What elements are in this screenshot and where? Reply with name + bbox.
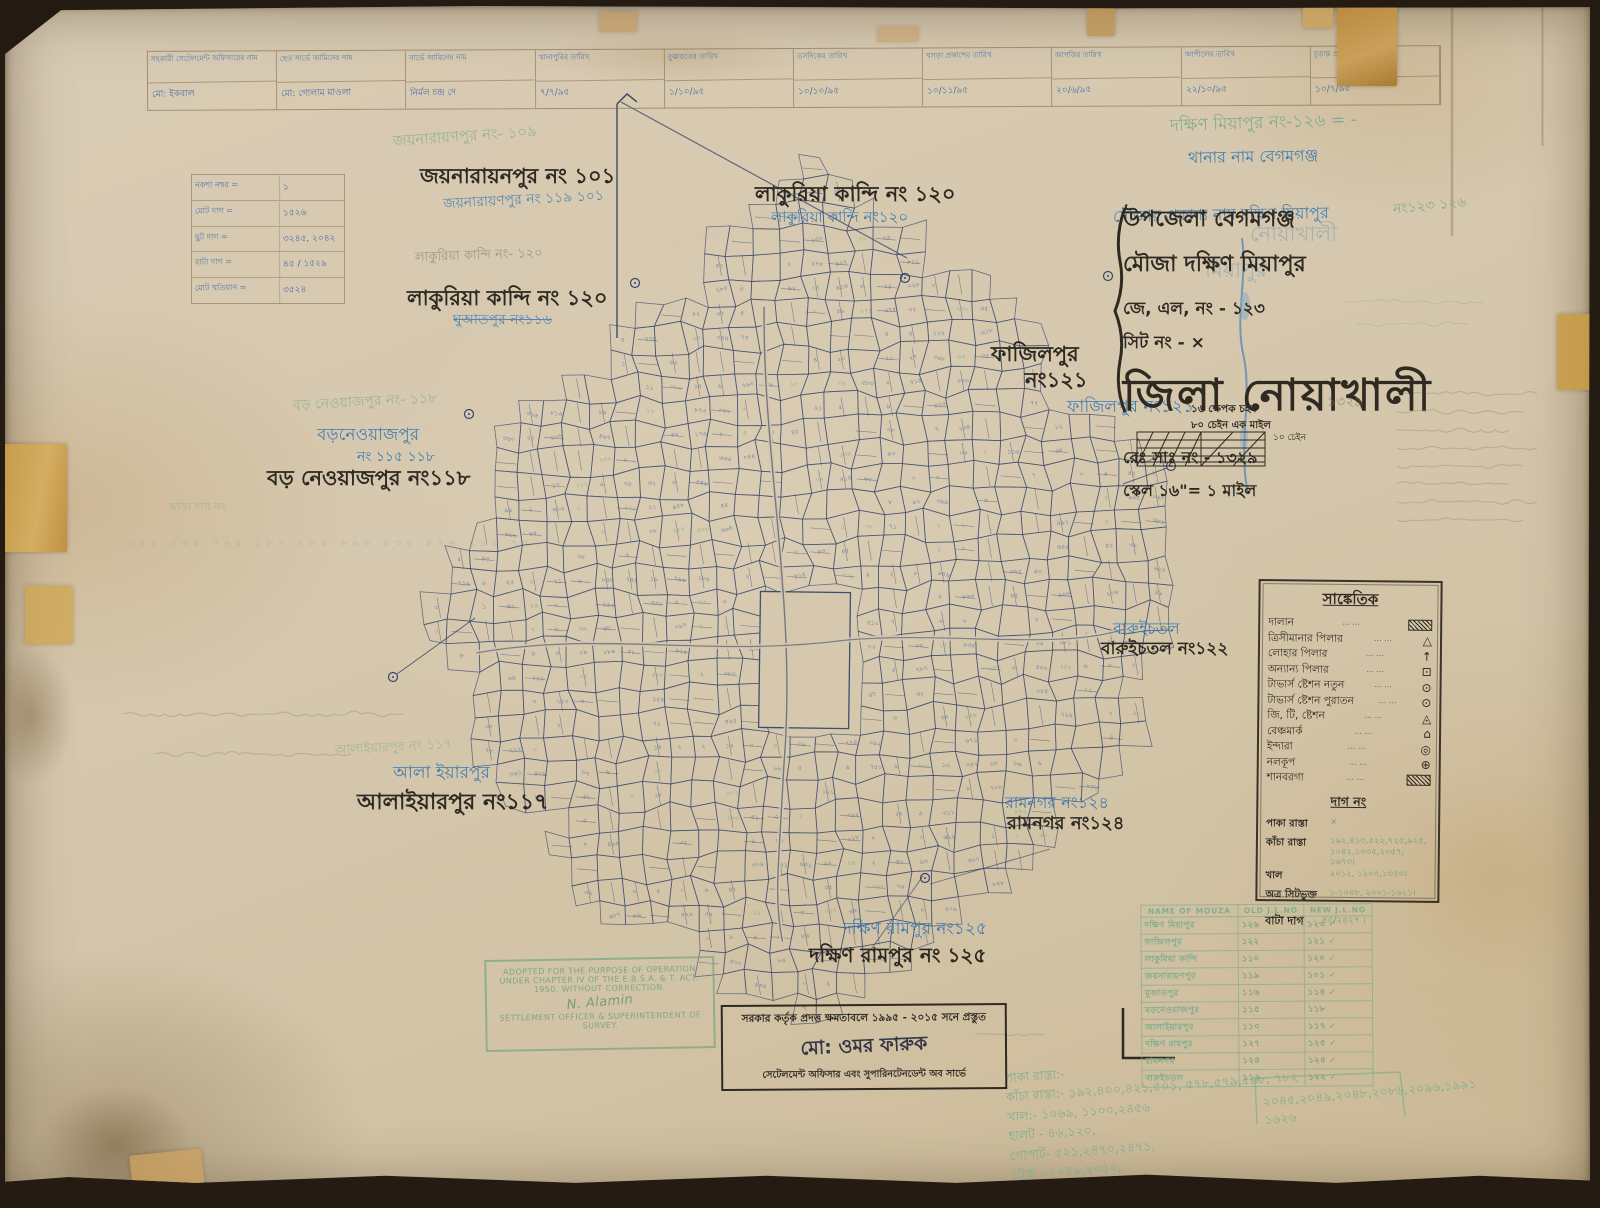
iron-pillar-symbol: ↑ (1422, 650, 1432, 664)
scanned-cadastral-map-sheet: ০৩৫৯১৭৮৫৮২৫৮৫০৭৪৫০২৫৭৮৯০৭৮১১২৮৫৫৬৭৬৪৯১৬৩… (0, 0, 1600, 1208)
register-table: সহকারী সেটেলমেন্ট অফিসারের নামমো: ইকবাল … (147, 45, 1441, 111)
svg-text:০৪৭: ০৪৭ (966, 762, 978, 769)
svg-text:৪০৮: ৪০৮ (652, 672, 664, 679)
svg-text:৫: ৫ (621, 337, 625, 344)
dag-value: ১-১০৪৮, ২০০১-১৬২১। (1329, 889, 1429, 906)
svg-text:৯১৬: ৯১৬ (835, 282, 848, 291)
legend-dots: ··· ··· (1354, 698, 1422, 708)
svg-text:৩: ৩ (811, 308, 816, 316)
svg-text:০৮১: ০৮১ (1059, 639, 1071, 646)
paper: ০৩৫৯১৭৮৫৮২৫৮৫০৭৪৫০২৫৭৮৯০৭৮১১২৮৫৫৬৭৬৪৯১৬৩… (5, 6, 1590, 1190)
register-column: খসড়া প্রকাশের তারিখ১০/১১/৯৫ (923, 48, 1052, 107)
svg-text:৫৪৬: ৫৪৬ (695, 479, 708, 488)
svg-text:৫১৯: ৫১৯ (909, 377, 922, 386)
old-jl: ১১৬ (1238, 984, 1304, 1001)
svg-text:৩: ৩ (672, 480, 676, 487)
svg-text:২২: ২২ (652, 720, 661, 729)
svg-text:৩৫৭: ৩৫৭ (825, 908, 837, 916)
svg-text:৩৩: ৩৩ (989, 760, 999, 769)
svg-text:২: ২ (960, 522, 965, 530)
register-column: সার্ভে আমিনের নামনির্মল চন্দ্র দে (406, 50, 535, 109)
benchmark-symbol: ⌂ (1423, 727, 1431, 741)
tape-mark (1557, 314, 1600, 390)
svg-text:৪৬২: ৪৬২ (1035, 664, 1048, 672)
svg-text:৬৪৫: ৬৪৫ (1057, 543, 1070, 551)
svg-text:৬২: ৬২ (916, 690, 925, 698)
svg-text:০৯: ০৯ (797, 741, 805, 748)
svg-text:০৯২: ০৯২ (847, 811, 860, 819)
svg-text:৮: ৮ (802, 981, 807, 989)
svg-text:৫: ৫ (919, 834, 924, 841)
svg-text:৬৯: ৬৯ (848, 907, 857, 916)
svg-text:৩: ৩ (600, 529, 605, 536)
register-column: খানাপুরির তারিখ৭/৭/৯৫ (535, 50, 664, 109)
note-chharadag-numbers-green: ৩৪৫ ৩৬৪ ৭৬৫ ১৮৭ ২৮৫ ৬৬৬ ৪৩৫ ৪২৬ ৭৪৪ ৭৫২ (127, 538, 545, 550)
svg-text:৯: ৯ (886, 403, 890, 410)
svg-text:৯০৭: ৯০৭ (835, 259, 848, 268)
svg-text:৫০৯: ৫০৯ (945, 906, 957, 913)
register-header: আপীলের তারিখ (1181, 46, 1310, 79)
svg-text:৮: ৮ (966, 786, 970, 793)
register-value: নির্মল চন্দ্র দে (406, 80, 535, 110)
svg-text:৭: ৭ (530, 627, 536, 635)
summary-value: ৪৫ / ১৫২৯ (278, 252, 344, 278)
legend-dots: ··· ··· (1343, 636, 1423, 646)
svg-text:৭৭৪: ৭৭৪ (845, 739, 858, 748)
svg-text:৯২: ৯২ (1132, 710, 1140, 718)
svg-text:০: ০ (1107, 662, 1112, 669)
svg-text:৭: ৭ (871, 835, 876, 842)
svg-text:১৭: ১৭ (551, 482, 560, 490)
svg-text:৬: ৬ (459, 652, 465, 660)
svg-text:৫৭৮: ৫৭৮ (811, 261, 823, 269)
svg-text:৩৭৯: ৩৭৯ (751, 861, 764, 870)
svg-text:৭৯৬: ৭৯৬ (673, 575, 686, 584)
svg-text:৮৫: ৮৫ (848, 860, 856, 867)
svg-text:৬: ৬ (704, 887, 709, 894)
svg-text:০: ০ (1079, 471, 1084, 479)
svg-text:২: ২ (528, 507, 532, 514)
new-jl: ১২০ ✓ (1304, 950, 1372, 967)
svg-text:৫: ৫ (838, 404, 843, 412)
svg-text:৬৭: ৬৭ (787, 285, 796, 293)
svg-text:৭: ৭ (745, 574, 750, 581)
svg-text:৯৩: ৯৩ (920, 858, 929, 866)
svg-text:১৬: ১৬ (725, 742, 734, 750)
svg-text:৯: ৯ (894, 763, 899, 770)
svg-text:৭৫: ৭৫ (740, 334, 749, 342)
svg-text:১: ১ (723, 623, 727, 630)
new-jl: ১২১ ✓ (1304, 933, 1372, 950)
svg-text:৮৬৩: ৮৬৩ (962, 593, 975, 601)
village-label-fazilpur: ফাজিলপুর (991, 342, 1079, 366)
svg-text:০: ০ (960, 545, 965, 553)
svg-text:৮৪: ৮৪ (778, 957, 786, 964)
table-row: মুজাতপুর১১৬১১৪ ✓ (1141, 984, 1372, 1003)
dag-value: ১৯২,৪১৩,৫২২,৭২৫,৯২৫, ১০৪২,১৩৩৫,২০৫৭, ১৬৭… (1330, 836, 1430, 868)
bata-dag-value: ৪৫/২৪২৭ । (1322, 913, 1366, 932)
svg-text:৮৫৮: ৮৫৮ (602, 577, 614, 584)
svg-text:৭: ৭ (1031, 472, 1036, 479)
village-label-alaiyarpur-blue: আলা ইয়ারপুর (393, 764, 490, 784)
svg-text:৮৯: ৮৯ (801, 932, 810, 941)
svg-text:৬: ৬ (1084, 663, 1088, 670)
svg-text:৩: ৩ (434, 604, 439, 612)
svg-text:৪০৬: ৪০৬ (534, 771, 546, 778)
register-header: খানাপুরির তারিখ (535, 49, 664, 82)
svg-text:৫১০: ৫১০ (866, 619, 879, 628)
svg-text:৩৮: ৩৮ (577, 553, 586, 561)
svg-text:০: ০ (630, 793, 635, 800)
village-label-lakuria-kandi-pencil: লাকুরিয়া কান্দি নং- ১২০ (415, 247, 543, 266)
svg-text:৯৩: ৯৩ (1033, 568, 1042, 576)
svg-text:৫০০: ৫০০ (729, 958, 742, 968)
svg-text:৩১৬: ৩১৬ (526, 410, 539, 419)
svg-text:৭৪৫: ৭৪৫ (625, 576, 638, 584)
village-label-lakuria-kandi-top-blue: লাকুরিয়া কান্দি নং১২০ (771, 209, 908, 226)
well-symbol: ◎ (1420, 742, 1431, 756)
legend-label: শানবরগা (1267, 770, 1304, 787)
dag-row: খাল২০১২, ১২০০,১৩৫৩। (1265, 869, 1429, 888)
paper-crease (1541, 6, 1544, 146)
svg-text:৭: ৭ (583, 842, 587, 849)
svg-text:৩২: ৩২ (716, 310, 725, 319)
register-header: খসড়া প্রকাশের তারিখ (923, 47, 1052, 80)
svg-text:৫: ৫ (777, 933, 782, 941)
svg-text:৬৩১: ৬৩১ (799, 861, 812, 870)
old-jl: ১২২ (1238, 933, 1304, 950)
svg-text:০০১: ০০১ (726, 788, 739, 798)
register-value: মো: গোলাম মাওলা (277, 81, 406, 111)
register-header: আপত্তির তারিখ (1052, 47, 1181, 80)
svg-text:৩৩: ৩৩ (957, 354, 965, 361)
svg-text:১৪: ১৪ (883, 283, 892, 291)
mouza-name: মুজাতপুর (1141, 985, 1238, 1003)
mouza-name: জয়নারায়ণপুর (1141, 968, 1238, 986)
village-label-dakkhin-rampur: দক্ষিণ রামপুর নং ১২৫ (809, 944, 986, 967)
adoption-stamp: ADOPTED FOR THE PURPOSE OF OPERATION UND… (484, 956, 716, 1052)
svg-text:৩১১: ৩১১ (942, 809, 955, 818)
village-label-jaynarayanpur: জয়নারায়নপুর নং ১০১ (420, 164, 615, 188)
tape-mark (1303, 2, 1333, 28)
svg-text:২: ২ (890, 571, 895, 578)
svg-text:৯: ৯ (845, 764, 850, 771)
svg-text:৮৬: ৮৬ (1013, 760, 1022, 768)
title-sheet-number: সিট নং - × (1123, 330, 1493, 358)
svg-text:২৬: ২৬ (1035, 640, 1043, 647)
svg-text:৬৫: ৬৫ (980, 305, 989, 313)
svg-text:৭৮১: ৭৮১ (1152, 517, 1165, 526)
svg-text:৭: ৭ (1131, 662, 1136, 670)
svg-text:৫: ৫ (656, 888, 661, 895)
svg-text:৮: ৮ (921, 907, 925, 914)
new-jl: ১২৪ ✓ (1305, 1052, 1373, 1069)
note-chharadag-green: ছাড়া দাগ নং (170, 501, 225, 514)
table-row: আলাইয়ারপুর১১০১১৭ ✓ (1142, 1018, 1373, 1037)
bata-dag-row: বাটা দাগ৪৫/২৪২৭ । (1265, 913, 1429, 934)
svg-text:৫১৪: ৫১৪ (793, 571, 806, 581)
svg-text:৭৮: ৭৮ (865, 524, 873, 531)
svg-text:২২: ২২ (753, 910, 762, 918)
traverse-station-new-symbol: ⊙ (1421, 681, 1431, 695)
svg-text:২২২: ২২২ (509, 746, 522, 755)
green-notes: পাকা রাস্তা:- কাঁচা রাস্তা:- ১৯২,৪০০,৪২১… (1004, 1048, 1307, 1208)
register-value: ১/১০/৯৫ (665, 79, 794, 109)
svg-text:৯৮৭: ৯৮৭ (608, 911, 621, 921)
svg-text:৩৬০: ৩৬০ (502, 435, 515, 443)
svg-text:৭: ৭ (680, 887, 685, 895)
svg-text:৪৫: ৪৫ (720, 502, 729, 511)
svg-text:০: ০ (896, 907, 902, 915)
svg-text:৯: ৯ (753, 934, 758, 942)
svg-text:৩: ৩ (673, 599, 679, 607)
svg-text:১৭৬: ১৭৬ (695, 430, 708, 438)
tape-mark (129, 1148, 205, 1193)
svg-text:৭৮: ৭৮ (887, 427, 895, 434)
svg-text:০: ০ (793, 549, 798, 557)
svg-text:৭৭৫: ৭৭৫ (644, 335, 657, 343)
svg-text:১১: ১১ (645, 384, 654, 393)
svg-text:১৮৬: ১৮৬ (697, 575, 710, 583)
svg-text:৭১: ৭১ (888, 523, 897, 531)
register-value: ২০/৬/৯৫ (1052, 77, 1181, 107)
svg-text:২০৬: ২০৬ (1106, 589, 1119, 598)
svg-text:০৪৪: ০৪৪ (743, 453, 756, 461)
svg-text:৩: ৩ (742, 406, 747, 413)
stamp-line-1: সরকার কর্তৃক প্রদত্ত ক্ষমতাবলে ১৯৯৫ - ২০… (727, 1010, 1001, 1029)
svg-text:৪: ৪ (813, 357, 819, 365)
svg-text:৮৩০: ৮৩০ (958, 378, 970, 386)
svg-text:০৭: ০৭ (908, 306, 917, 314)
svg-text:৫০: ৫০ (715, 262, 724, 270)
svg-text:৫: ৫ (909, 331, 913, 338)
svg-text:২৩: ২৩ (867, 643, 876, 651)
svg-text:৪৪: ৪৪ (528, 530, 537, 538)
summary-row: মোট দাগ =১৫২৬ (192, 201, 344, 227)
svg-text:৭৫: ৭৫ (1084, 687, 1093, 695)
svg-text:৮: ৮ (729, 934, 734, 942)
summary-value: ১৫২৬ (278, 200, 344, 226)
svg-text:২৩৪: ২৩৪ (958, 423, 971, 433)
svg-text:১০: ১০ (789, 381, 798, 389)
legend-dots: ··· ··· (1293, 744, 1421, 754)
svg-text:১৮৩: ১৮৩ (726, 814, 739, 822)
svg-text:৫৯: ৫৯ (836, 308, 844, 315)
svg-text:৬: ৬ (529, 578, 534, 585)
svg-text:৪২৫: ৪২৫ (724, 717, 737, 726)
svg-text:০৮৫: ০৮৫ (1036, 688, 1048, 695)
svg-text:৬: ৬ (1012, 665, 1016, 672)
svg-text:১: ১ (621, 361, 625, 368)
svg-text:৪২: ৪২ (670, 431, 679, 439)
svg-text:০৭: ০৭ (816, 477, 824, 484)
svg-text:৮৬১: ৮৬১ (509, 769, 522, 779)
svg-text:২৫৮: ২৫৮ (810, 235, 823, 244)
svg-text:১: ১ (482, 604, 486, 611)
svg-text:৯১: ৯১ (814, 404, 823, 412)
svg-text:০৯: ০৯ (775, 837, 783, 844)
svg-text:৬৭: ৬৭ (868, 690, 878, 699)
svg-text:৬৮: ৬৮ (940, 713, 949, 721)
svg-text:৫৮৩: ৫৮৩ (861, 379, 874, 387)
svg-text:৩: ৩ (532, 698, 537, 706)
svg-text:৪১: ৪১ (1105, 541, 1115, 550)
summary-value: ৩৫২৪ (278, 278, 344, 304)
svg-text:০২৮: ০২৮ (907, 281, 920, 290)
svg-text:৮: ৮ (913, 570, 918, 578)
summary-row: ছুট দাগ =৩২৪৫, ২০৪২ (192, 227, 344, 253)
register-header: সহকারী সেটেলমেন্ট অফিসারের নাম (148, 51, 277, 84)
svg-text:৮১১: ৮১১ (907, 259, 919, 266)
svg-text:১১২: ১১২ (933, 330, 945, 337)
svg-text:০: ০ (749, 742, 753, 749)
svg-text:৫: ৫ (434, 628, 439, 636)
svg-text:৮: ৮ (1034, 616, 1040, 624)
stamp-line-2: সেটেলমেন্ট অফিসার এবং সুপারিনটেনডেন্ট অব… (727, 1067, 1001, 1084)
register-header: সার্ভে আমিনের নাম (406, 49, 535, 82)
ghat-symbol (1407, 775, 1431, 786)
svg-text:৪৯: ৪৯ (1154, 589, 1163, 597)
tape-mark (599, 12, 637, 32)
svg-text:৩৮: ৩৮ (1129, 542, 1138, 550)
svg-text:৩২: ৩২ (584, 890, 592, 897)
mouza-name: বড়নেওয়াজপুর (1142, 1002, 1239, 1020)
svg-text:২৫২: ২৫২ (1059, 663, 1072, 671)
svg-text:১৫: ১৫ (939, 641, 948, 649)
register-column: আপত্তির তারিখ২০/৬/৯৫ (1052, 47, 1181, 106)
svg-text:২৫৩: ২৫৩ (602, 601, 615, 610)
tri-boundary-pillar-symbol: △ (1423, 634, 1432, 648)
svg-text:৫: ৫ (740, 310, 745, 317)
svg-text:৬৪: ৬৪ (812, 284, 821, 292)
svg-text:৭৮: ৭৮ (485, 747, 494, 755)
svg-text:০৫: ০৫ (824, 884, 832, 891)
svg-text:৬৭৫: ৬৭৫ (884, 306, 897, 314)
svg-text:১৩: ১৩ (654, 768, 662, 775)
other-pillar-symbol: ⊡ (1422, 665, 1432, 679)
svg-text:৮২: ৮২ (581, 769, 590, 777)
dag-label: পাকা রাস্তা (1266, 816, 1330, 834)
legend-title: সাঙ্কেতিক (1268, 587, 1432, 614)
pencil-rs-number: ১৩২৯ (1327, 394, 1363, 410)
svg-text:৮: ৮ (800, 909, 805, 917)
svg-text:০: ০ (554, 602, 559, 610)
svg-text:৩২: ৩২ (837, 380, 846, 388)
svg-text:৬৮: ৬৮ (1055, 446, 1065, 455)
tape-mark (1337, 0, 1397, 86)
title-thana-blue: থানার নাম বেগমগঞ্জ (1188, 147, 1318, 168)
svg-text:৩৩০: ৩৩০ (650, 600, 663, 608)
old-jl: ১১০ (1238, 950, 1304, 967)
svg-text:০৮০: ০৮০ (724, 670, 737, 678)
title-scale: স্কেল ১৬"= ১ মাইল (1123, 478, 1493, 505)
svg-text:১৫: ১৫ (694, 383, 702, 390)
village-label-ramnagar-blue: রামনগর নং১২৪ (1005, 794, 1109, 812)
svg-text:৪৪৯: ৪৪৯ (964, 711, 977, 721)
svg-text:২১৭: ২১৭ (576, 481, 588, 488)
legend-dots: ··· ··· (1325, 713, 1422, 723)
register-header: বুঝারতের তারিখ (665, 48, 794, 81)
dag-value: × (1330, 817, 1430, 834)
svg-text:০৯: ০৯ (579, 649, 589, 658)
svg-text:৭২৯: ৭২৯ (1060, 711, 1072, 719)
tape-mark (877, 26, 919, 42)
svg-text:৪৩: ৪৩ (817, 548, 827, 557)
svg-text:৫: ৫ (774, 813, 779, 821)
svg-text:২৭৫: ২৭৫ (860, 308, 872, 315)
village-label-ramnagar: রামনগর নং১২৪ (1007, 814, 1124, 835)
svg-text:২: ২ (557, 722, 562, 729)
summary-value: ৩২৪৫, ২০৪২ (278, 226, 344, 252)
svg-text:২: ২ (872, 859, 876, 866)
stain (35, 1086, 195, 1206)
svg-text:৪: ৪ (1108, 734, 1114, 742)
svg-text:২: ২ (701, 743, 706, 750)
register-value: ২২/১০/৯৫ (1181, 77, 1310, 107)
svg-text:৪: ৪ (885, 331, 890, 338)
svg-text:২৭: ২৭ (909, 354, 918, 363)
svg-text:৫৩: ৫৩ (887, 451, 896, 459)
village-label-boroneyajpur-green: বড় নেওয়াজপুর নং- ১১৮ (293, 390, 438, 414)
svg-text:০৯২: ০৯২ (869, 739, 882, 748)
svg-text:৭১৯: ৭১৯ (458, 580, 470, 587)
table-row: বড়নেওয়াজপুর১১৫১১৮ (1142, 1001, 1373, 1020)
dag-row: অত্র সিটভুক্ত১-১০৪৮, ২০০১-১৬২১। (1265, 888, 1429, 907)
village-label-alaiyarpur-green: আলাইয়ারপুর নং ১১৭ (335, 738, 453, 759)
svg-text:৩৩৯: ৩৩৯ (839, 450, 852, 460)
svg-text:৪৮৭: ৪৮৭ (967, 856, 980, 865)
svg-text:৪৭: ৪৭ (728, 886, 737, 894)
village-label-dakkhin-rampur-blue: দক্ষিণ রামপুর নং১২৫ (843, 920, 987, 940)
svg-text:৯৬: ৯৬ (766, 429, 775, 438)
svg-text:৪৮: ৪৮ (896, 859, 904, 866)
svg-text:৭৫০: ৭৫০ (869, 763, 882, 771)
svg-text:৪৩: ৪৩ (669, 360, 677, 368)
register-column: তসদিকের তারিখ১০/১০/৯৫ (794, 48, 923, 107)
mouza-name: আলাইয়ারপুর (1142, 1019, 1239, 1037)
svg-text:০৮৯: ০৮৯ (603, 648, 616, 657)
svg-text:৯: ৯ (577, 578, 582, 586)
legend-dots: ··· ··· (1294, 620, 1408, 630)
village-label-boroneyajpur-blue1: বড়নেওয়াজপুর (317, 426, 419, 446)
svg-text:৮: ৮ (938, 594, 943, 602)
svg-text:৭৬৩: ৭৬৩ (741, 381, 754, 390)
tubewell-symbol: ⊕ (1421, 758, 1431, 772)
svg-text:২৩: ২৩ (698, 599, 707, 607)
svg-text:৪৬৫: ৪৬৫ (607, 840, 620, 848)
svg-text:১৯: ১৯ (598, 409, 606, 416)
svg-text:৮৪৮: ৮৪৮ (992, 880, 1005, 889)
svg-text:০: ০ (533, 746, 538, 754)
svg-text:৬২২: ৬২২ (943, 834, 955, 842)
register-value: ৭/৭/৯৫ (535, 79, 664, 109)
svg-text:৬১: ৬১ (582, 793, 591, 801)
svg-text:৩৫: ৩৫ (579, 673, 588, 681)
new-jl: ১১৭ ✓ (1304, 1018, 1372, 1035)
register-column: বুঝারতের তারিখ১/১০/৯৫ (665, 49, 794, 108)
village-label-jaynarayanpur-blue: জয়নারায়ণপুর নং ১১৯ ১০১ (443, 188, 605, 213)
legend-item: শানবরগা··· ··· (1267, 771, 1431, 788)
svg-text:২৫৩: ২৫৩ (556, 698, 568, 706)
svg-text:৪: ৪ (742, 430, 747, 437)
svg-text:৫১: ৫১ (627, 648, 636, 657)
svg-text:৫: ৫ (1103, 494, 1109, 502)
svg-text:৪৩: ৪৩ (481, 555, 490, 563)
svg-text:৬: ৬ (718, 383, 723, 390)
svg-text:০৪৪: ০৪৪ (716, 334, 729, 342)
dag-value: ২০১২, ১২০০,১৩৫৩। (1330, 870, 1430, 887)
svg-text:৫: ৫ (891, 667, 896, 674)
